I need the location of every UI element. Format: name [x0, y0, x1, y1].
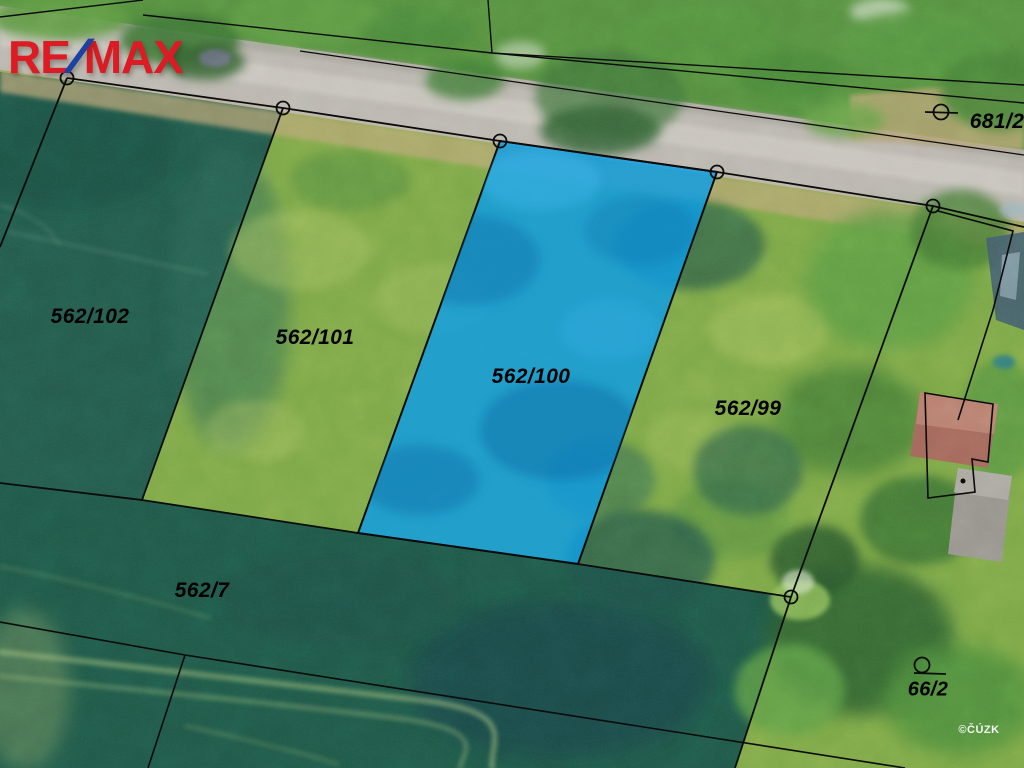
- logo-max: MAX: [84, 31, 183, 83]
- parcel-label-562-99: 562/99: [715, 397, 782, 421]
- parcel-label-562-100: 562/100: [492, 365, 571, 389]
- logo-re: RE: [8, 31, 70, 83]
- remax-logo: RE/MAX: [8, 34, 183, 80]
- parcel-label-562-7: 562/7: [175, 579, 230, 603]
- parcel-label-681-2: 681/2: [970, 110, 1024, 134]
- parcel-label-562-102: 562/102: [51, 305, 130, 329]
- aerial-cadastral-map: 562/102 562/101 562/100 562/99 562/7 681…: [0, 0, 1024, 768]
- parcel-label-562-101: 562/101: [276, 326, 355, 350]
- parcel-label-66-2: 66/2: [908, 679, 949, 702]
- boundary-dot: [961, 479, 966, 484]
- cuzk-watermark: ©ČÚZK: [958, 724, 999, 736]
